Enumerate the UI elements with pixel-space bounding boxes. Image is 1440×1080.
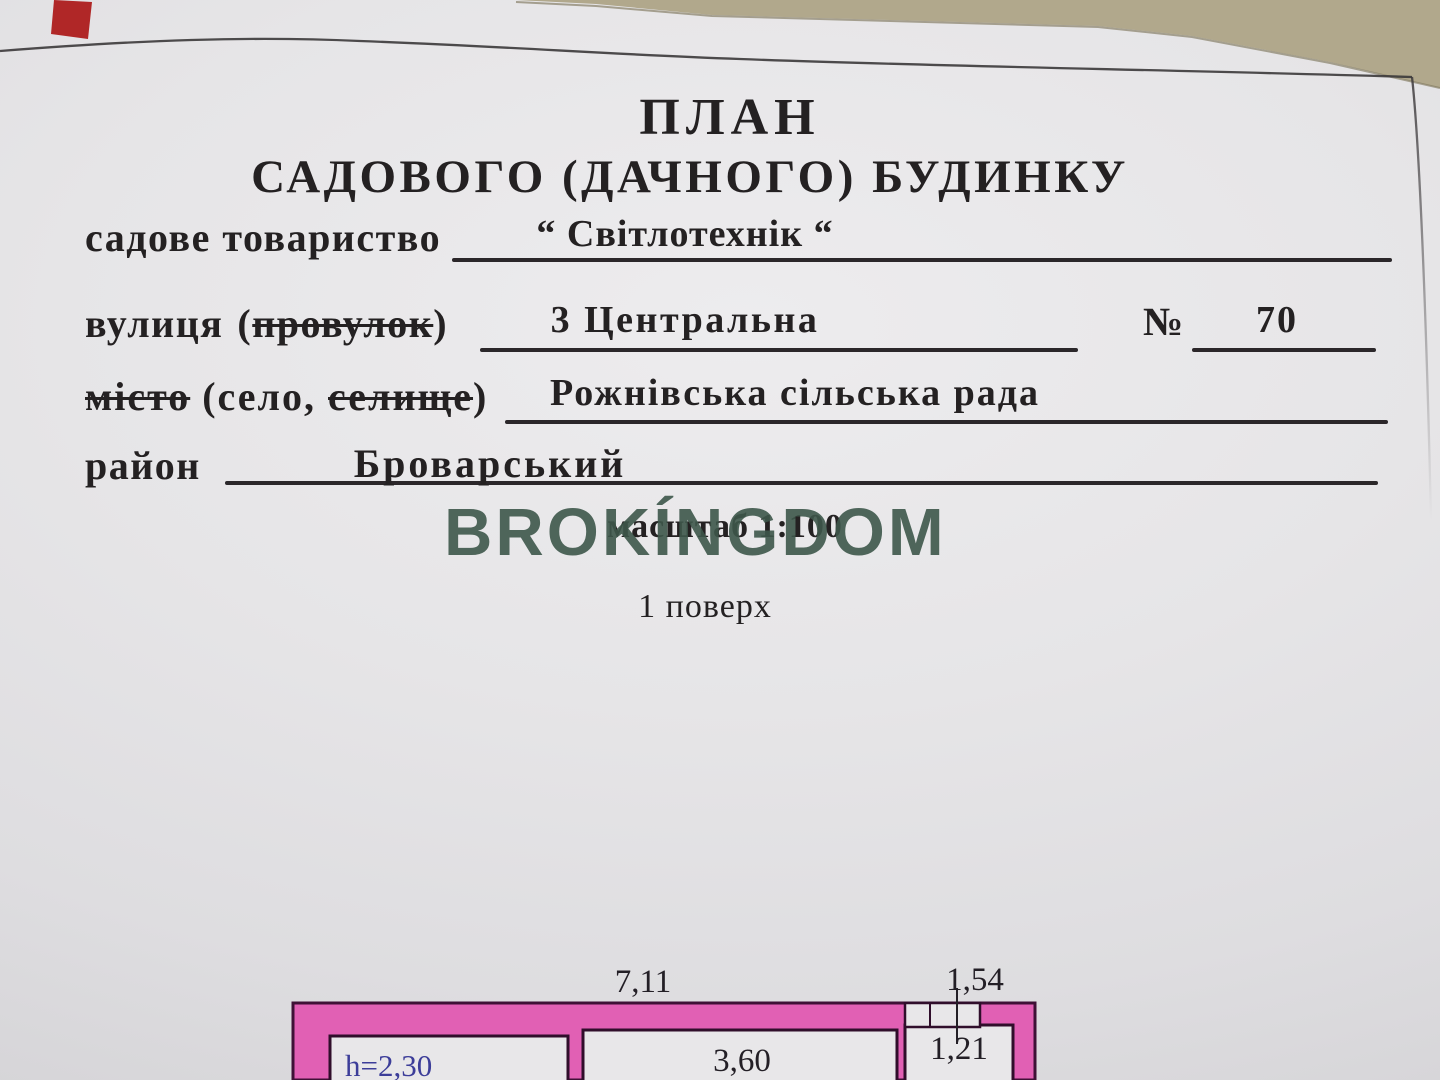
photo-edge-decor bbox=[0, 0, 1440, 560]
street-value: 3 Центральна bbox=[480, 298, 890, 342]
street-label-word: вулиця bbox=[85, 301, 223, 346]
dim-entry-width-label: 1,54 bbox=[946, 962, 1004, 998]
form-border-top-line bbox=[0, 39, 1412, 77]
dim-overall-width-label: 7,11 bbox=[615, 964, 672, 1000]
brokingdom-watermark: BROKÍNGDOM bbox=[444, 494, 947, 571]
ceiling-height-label: h=2,30 bbox=[345, 1048, 432, 1080]
street-number-value: 70 bbox=[1192, 298, 1362, 342]
city-value: Рожнівська сільська рада bbox=[505, 371, 1085, 415]
district-label: район bbox=[85, 442, 201, 489]
street-struck-word: провулок bbox=[252, 301, 433, 346]
city-middle: (село, bbox=[202, 374, 316, 419]
document-subtitle: САДОВОГО (ДАЧНОГО) БУДИНКУ bbox=[185, 150, 1195, 204]
city-paren-close: ) bbox=[473, 374, 488, 419]
street-number-underline bbox=[1192, 348, 1376, 352]
city-underline bbox=[505, 420, 1388, 424]
street-label: вулиця(провулок) bbox=[85, 300, 448, 347]
city-struck-word2: селище bbox=[328, 374, 473, 419]
floor-note: 1 поверх bbox=[560, 588, 850, 626]
paper-edge-shadow bbox=[516, 2, 1440, 88]
city-label: місто(село,селище) bbox=[85, 373, 488, 420]
society-label: садове товариство bbox=[85, 214, 441, 261]
street-number-sign: № bbox=[1143, 298, 1185, 345]
society-value: “ Світлотехнік “ bbox=[470, 212, 900, 256]
document-photo: ПЛАН САДОВОГО (ДАЧНОГО) БУДИНКУ садове т… bbox=[0, 0, 1440, 1080]
window-opening bbox=[905, 1003, 980, 1027]
form-border-right-line bbox=[1412, 77, 1431, 520]
dim-middle-room-label: 3,60 bbox=[713, 1043, 771, 1079]
city-struck-word1: місто bbox=[85, 374, 190, 419]
street-paren-open: ( bbox=[237, 301, 252, 346]
district-value: Броварський bbox=[330, 440, 650, 487]
society-underline bbox=[452, 258, 1392, 262]
desk-background bbox=[516, 0, 1440, 88]
document-title: ПЛАН bbox=[565, 88, 895, 147]
street-underline bbox=[480, 348, 1078, 352]
red-marker bbox=[51, 0, 92, 39]
dim-entry-room-label: 1,21 bbox=[930, 1031, 988, 1067]
street-paren-close: ) bbox=[433, 301, 448, 346]
floor-plan-drawing: 7,11 1,54 3,60 1,21 h=2,30 bbox=[270, 940, 1060, 1080]
